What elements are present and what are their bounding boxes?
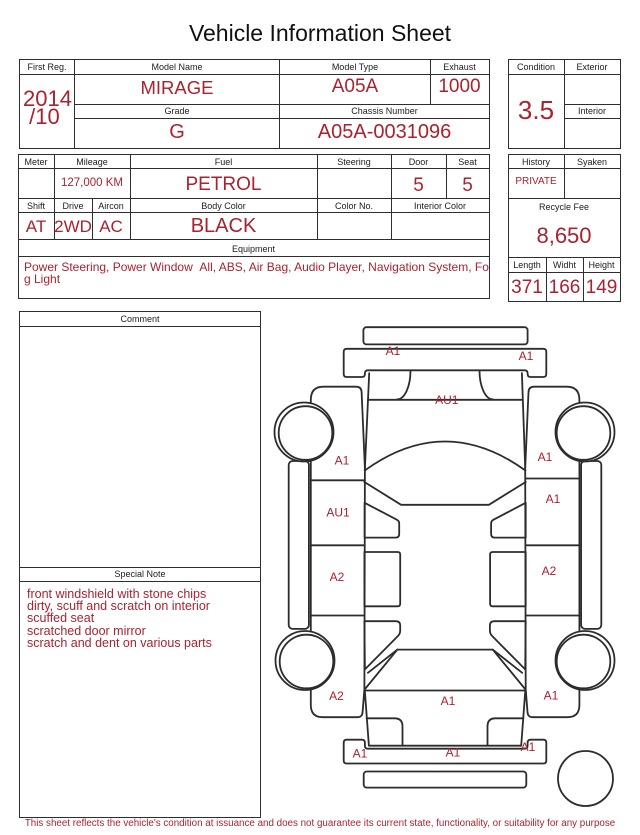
svg-text:A1: A1 [544,689,559,703]
svg-text:A1: A1 [519,349,534,363]
svg-text:A1: A1 [335,454,350,468]
svg-text:A1: A1 [521,740,536,754]
svg-text:A1: A1 [546,492,561,506]
svg-text:A1: A1 [386,344,401,358]
svg-text:A1: A1 [441,694,456,708]
svg-text:A2: A2 [329,689,344,703]
svg-text:AU1: AU1 [326,506,350,520]
svg-text:A2: A2 [542,564,557,578]
svg-text:A1: A1 [353,747,368,761]
svg-text:A1: A1 [446,746,461,760]
svg-text:A1: A1 [538,450,553,464]
svg-text:AU1: AU1 [435,393,459,407]
svg-text:A2: A2 [330,570,345,584]
